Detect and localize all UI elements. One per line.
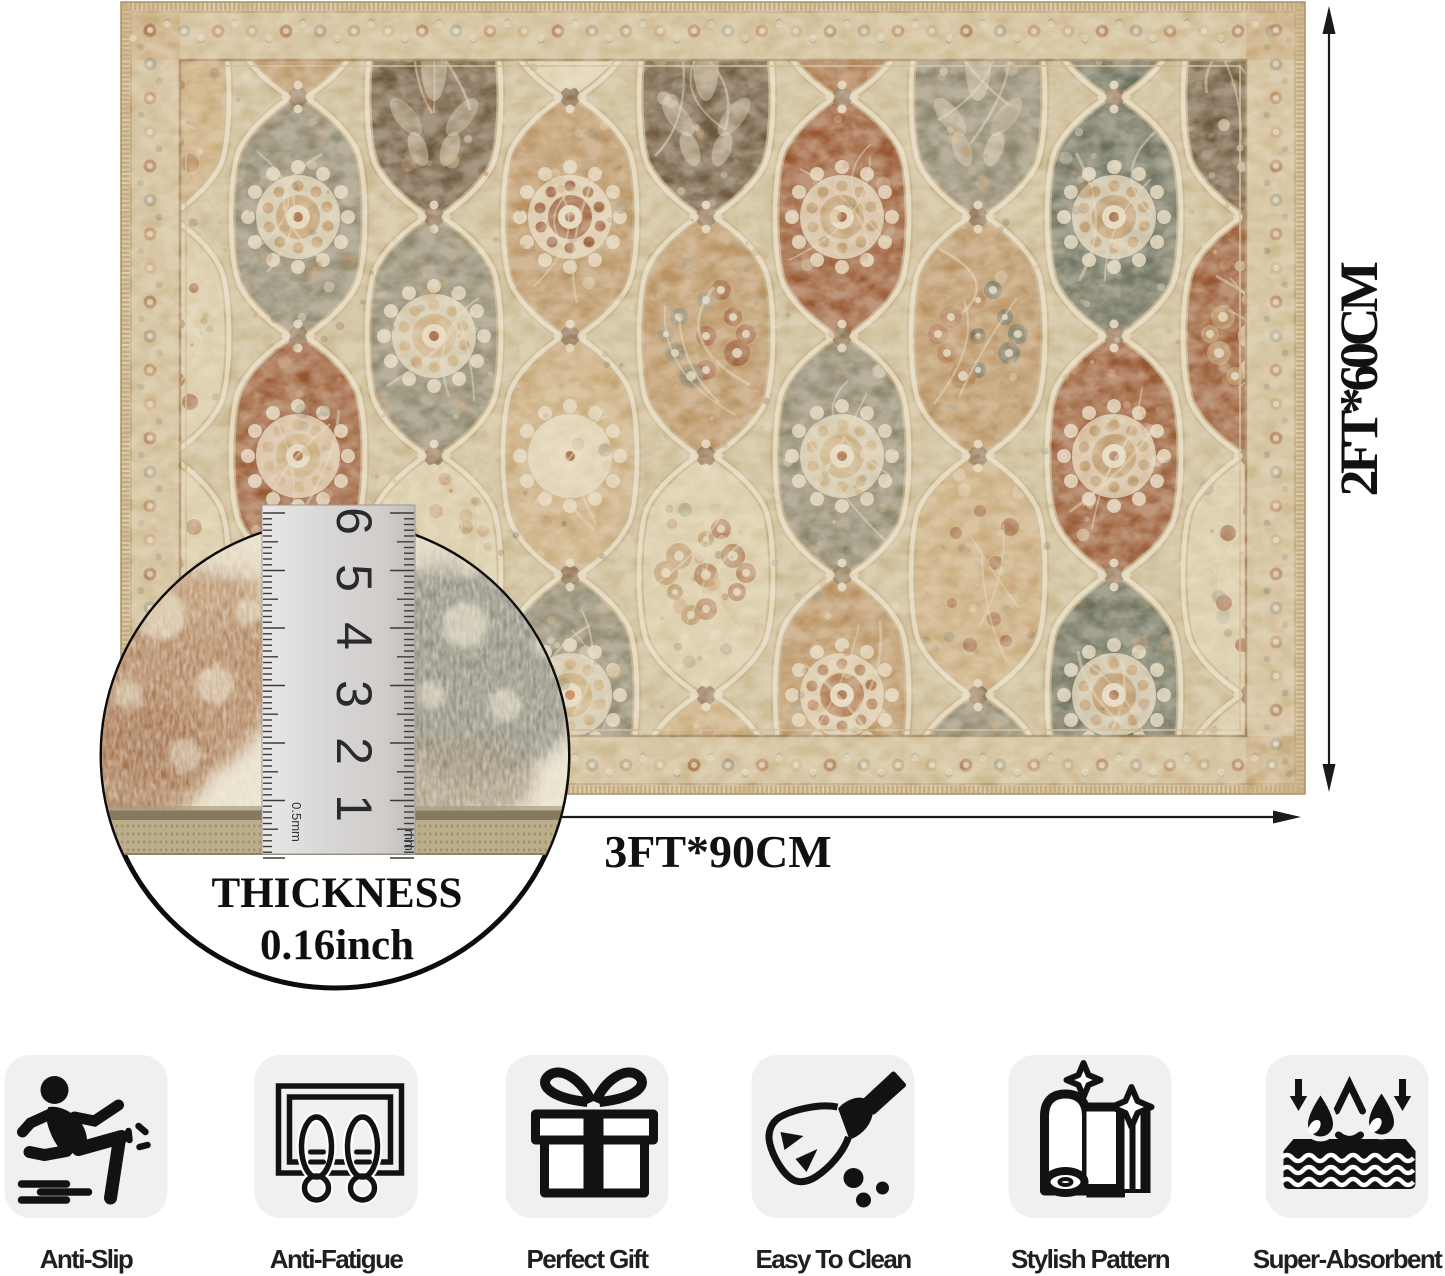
svg-text:4: 4 [326,622,382,650]
svg-text:0.16inch: 0.16inch [260,922,414,969]
svg-text:Stylish Pattern: Stylish Pattern [1011,1244,1170,1274]
svg-text:Perfect Gift: Perfect Gift [527,1244,650,1274]
svg-text:Anti-Fatigue: Anti-Fatigue [270,1244,404,1274]
svg-text:Easy To Clean: Easy To Clean [755,1244,911,1274]
svg-text:3: 3 [326,680,382,708]
svg-text:2: 2 [326,737,382,765]
svg-text:6: 6 [326,507,382,535]
svg-text:3FT*90CM: 3FT*90CM [604,826,831,877]
svg-text:2FT*60CM: 2FT*60CM [1329,262,1389,497]
svg-text:0.5mm: 0.5mm [289,802,304,842]
svg-text:Super-Absorbent: Super-Absorbent [1253,1244,1443,1274]
svg-text:mm: mm [402,829,417,851]
svg-text:Anti-Slip: Anti-Slip [40,1244,133,1274]
svg-text:5: 5 [326,564,382,592]
svg-text:THICKNESS: THICKNESS [212,870,463,917]
svg-text:1: 1 [326,794,382,822]
